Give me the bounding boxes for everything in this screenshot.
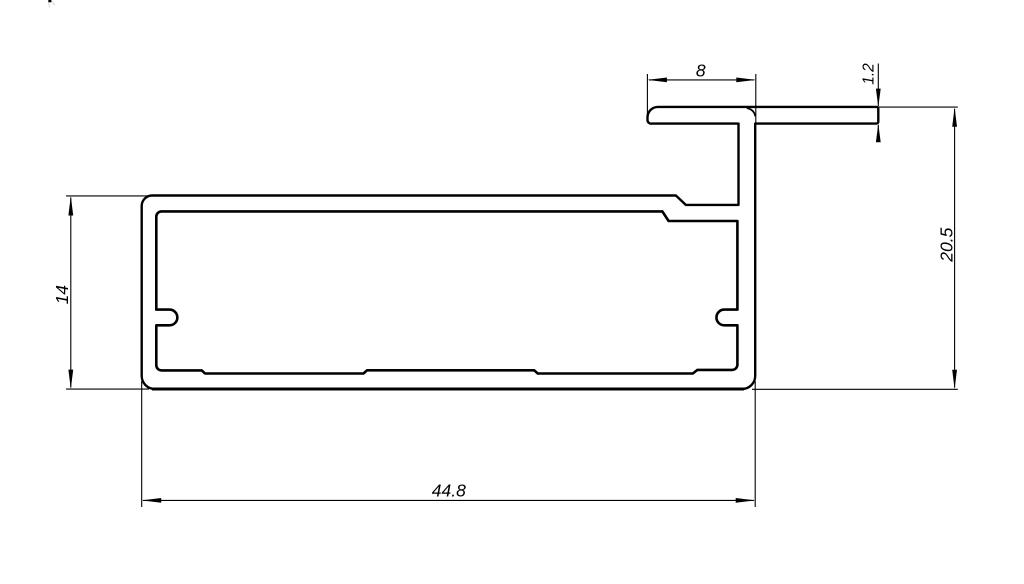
- svg-text:14: 14: [52, 285, 72, 305]
- svg-text:20.5: 20.5: [936, 227, 956, 262]
- svg-text:44.8: 44.8: [432, 481, 466, 501]
- svg-text:1.2: 1.2: [860, 63, 877, 85]
- svg-text:8: 8: [696, 60, 706, 80]
